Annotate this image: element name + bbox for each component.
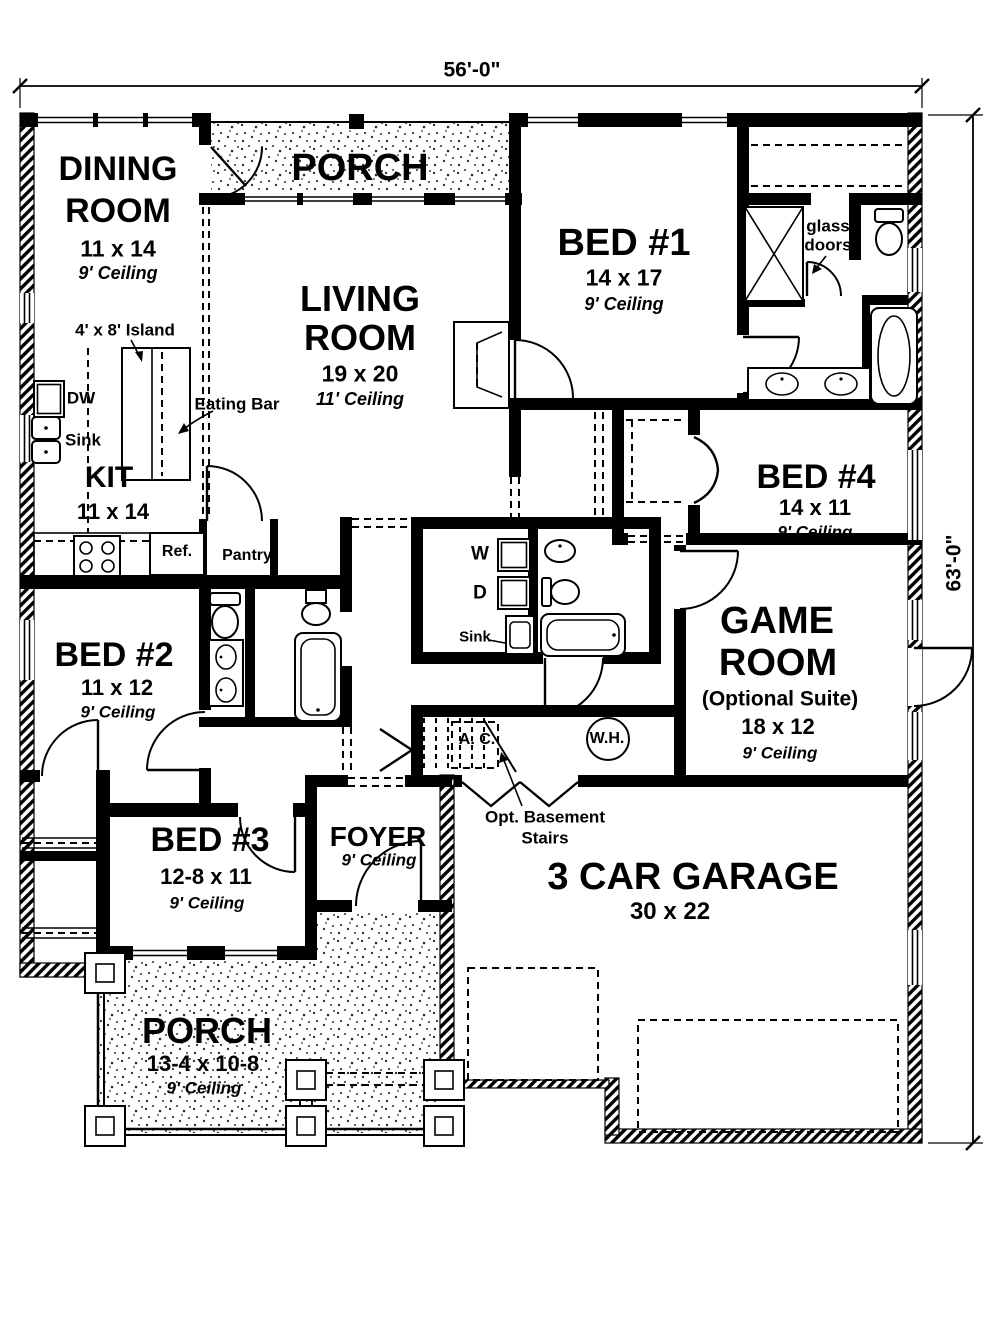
master-toilet: [875, 209, 903, 255]
game-room-ceiling: 9' Ceiling: [743, 745, 818, 762]
garage-door-outline-2: [638, 1020, 898, 1132]
bed3-size: 12-8 x 11: [160, 866, 252, 888]
dining-room-ceiling: 9' Ceiling: [78, 264, 157, 282]
bed2-size: 11 x 12: [81, 677, 153, 699]
porch-top-label: PORCH: [291, 149, 428, 187]
bed1-ceiling: 9' Ceiling: [584, 295, 663, 313]
master-shower: [745, 207, 803, 301]
refrigerator-label: Ref.: [162, 544, 192, 560]
dryer-box: [498, 577, 530, 609]
laundry-sink-label: Sink: [459, 630, 491, 645]
game-room-size: 18 x 12: [741, 716, 814, 738]
living-room-ceiling: 11' Ceiling: [316, 390, 404, 408]
living-room-size: 19 x 20: [322, 363, 399, 386]
living-room-label: LIVING: [300, 281, 420, 317]
garage-label: 3 CAR GARAGE: [547, 858, 838, 896]
porch-bottom-size: 13-4 x 10-8: [147, 1053, 260, 1075]
game-room-label2: ROOM: [719, 644, 837, 682]
kitchen-sink-label: Sink: [65, 432, 101, 449]
bed1-label: BED #1: [557, 224, 690, 262]
hall-bath-fixtures: [541, 540, 625, 656]
dishwasher-label: DW: [67, 390, 95, 407]
eating-bar-label: Eating Bar: [194, 396, 279, 413]
glass-doors-label: glass: [806, 218, 849, 235]
bed2-label: BED #2: [54, 638, 173, 672]
dining-room-size: 11 x 14: [80, 238, 155, 261]
basement-stairs-label2: Stairs: [521, 830, 568, 847]
bed4-ceiling: 9' Ceiling: [778, 524, 853, 541]
bed4-label: BED #4: [756, 460, 875, 494]
bed4-size: 14 x 11: [779, 497, 851, 519]
glass-doors-label2: doors: [804, 237, 851, 254]
bed1-size: 14 x 17: [586, 267, 663, 290]
kitchen-size: 11 x 14: [77, 501, 149, 523]
water-heater-label: W.H.: [590, 731, 625, 747]
exterior-wall-stoop: [445, 1080, 609, 1088]
bed3-label: BED #3: [150, 823, 269, 857]
living-room-label2: ROOM: [304, 320, 416, 356]
basement-stairs-label: Opt. Basement: [485, 809, 605, 826]
garage-size: 30 x 22: [630, 900, 710, 924]
laundry-sink-box: [489, 616, 534, 654]
foyer-ceiling: 9' Ceiling: [342, 852, 417, 869]
fireplace: [454, 322, 509, 408]
pantry-label: Pantry: [222, 548, 272, 564]
dimension-height-label: 63'-0": [944, 535, 965, 592]
exterior-wall-garage-west: [440, 775, 454, 1086]
washer-label: W: [471, 545, 489, 564]
porch-bottom-ceiling: 9' Ceiling: [167, 1080, 242, 1097]
dining-room-label2: ROOM: [65, 194, 171, 228]
bed3-ceiling: 9' Ceiling: [170, 895, 245, 912]
garage-door-outline-1: [468, 968, 598, 1080]
foyer-label: FOYER: [330, 823, 426, 851]
bed2-ceiling: 9' Ceiling: [81, 704, 156, 721]
master-vanity: [748, 368, 870, 400]
dryer-label: D: [473, 584, 487, 603]
kitchen-label: KIT: [85, 463, 133, 493]
master-tub: [871, 308, 917, 404]
dimension-width-label: 56'-0": [444, 60, 501, 81]
floor-plan: 56'-0" 63'-0" DINING ROOM 11 x 14 9' Cei…: [0, 0, 1000, 1333]
island-label: 4' x 8' Island: [75, 322, 175, 339]
game-room-label3: (Optional Suite): [702, 689, 858, 710]
bed2-bath-fixtures: [209, 590, 341, 721]
ac-unit-label: A. C.: [459, 732, 495, 748]
porch-bottom-label: PORCH: [142, 1013, 272, 1049]
washer-box: [498, 539, 530, 571]
game-room-label: GAME: [720, 602, 834, 640]
dining-room-label: DINING: [59, 152, 178, 186]
